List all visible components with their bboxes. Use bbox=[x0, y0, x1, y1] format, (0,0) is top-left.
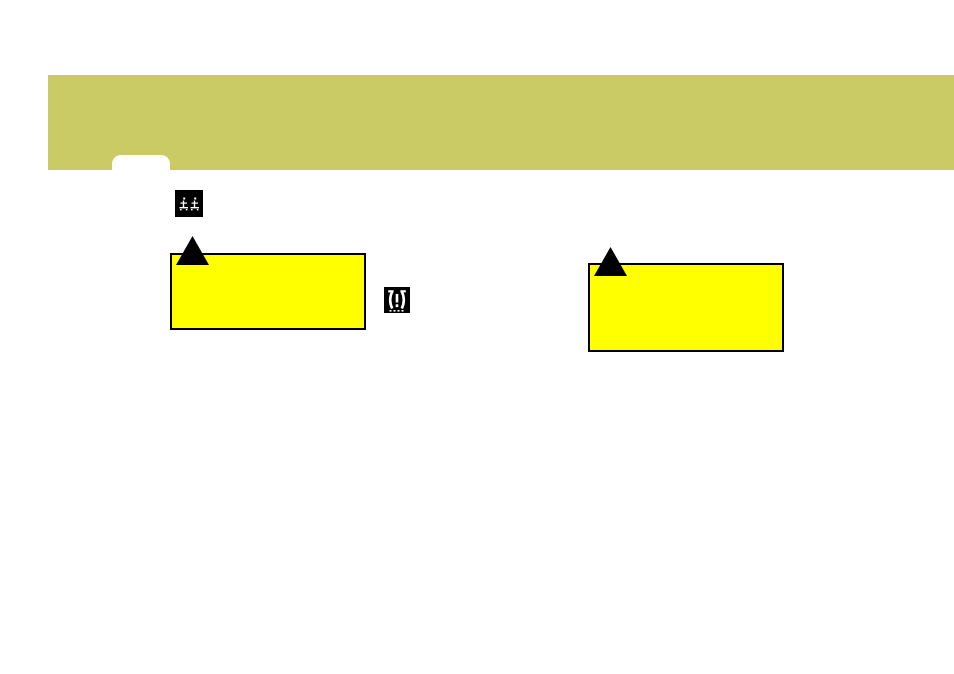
tire-pressure-warning-icon bbox=[384, 287, 410, 313]
warning-triangle-icon-left bbox=[176, 236, 209, 265]
chapter-header-band bbox=[48, 75, 954, 170]
two-seated-figures-icon bbox=[175, 190, 203, 217]
highlight-box-right bbox=[588, 263, 784, 352]
manual-page bbox=[0, 0, 954, 674]
warning-triangle-icon-right bbox=[594, 247, 627, 276]
header-band-tab-notch bbox=[112, 155, 170, 171]
